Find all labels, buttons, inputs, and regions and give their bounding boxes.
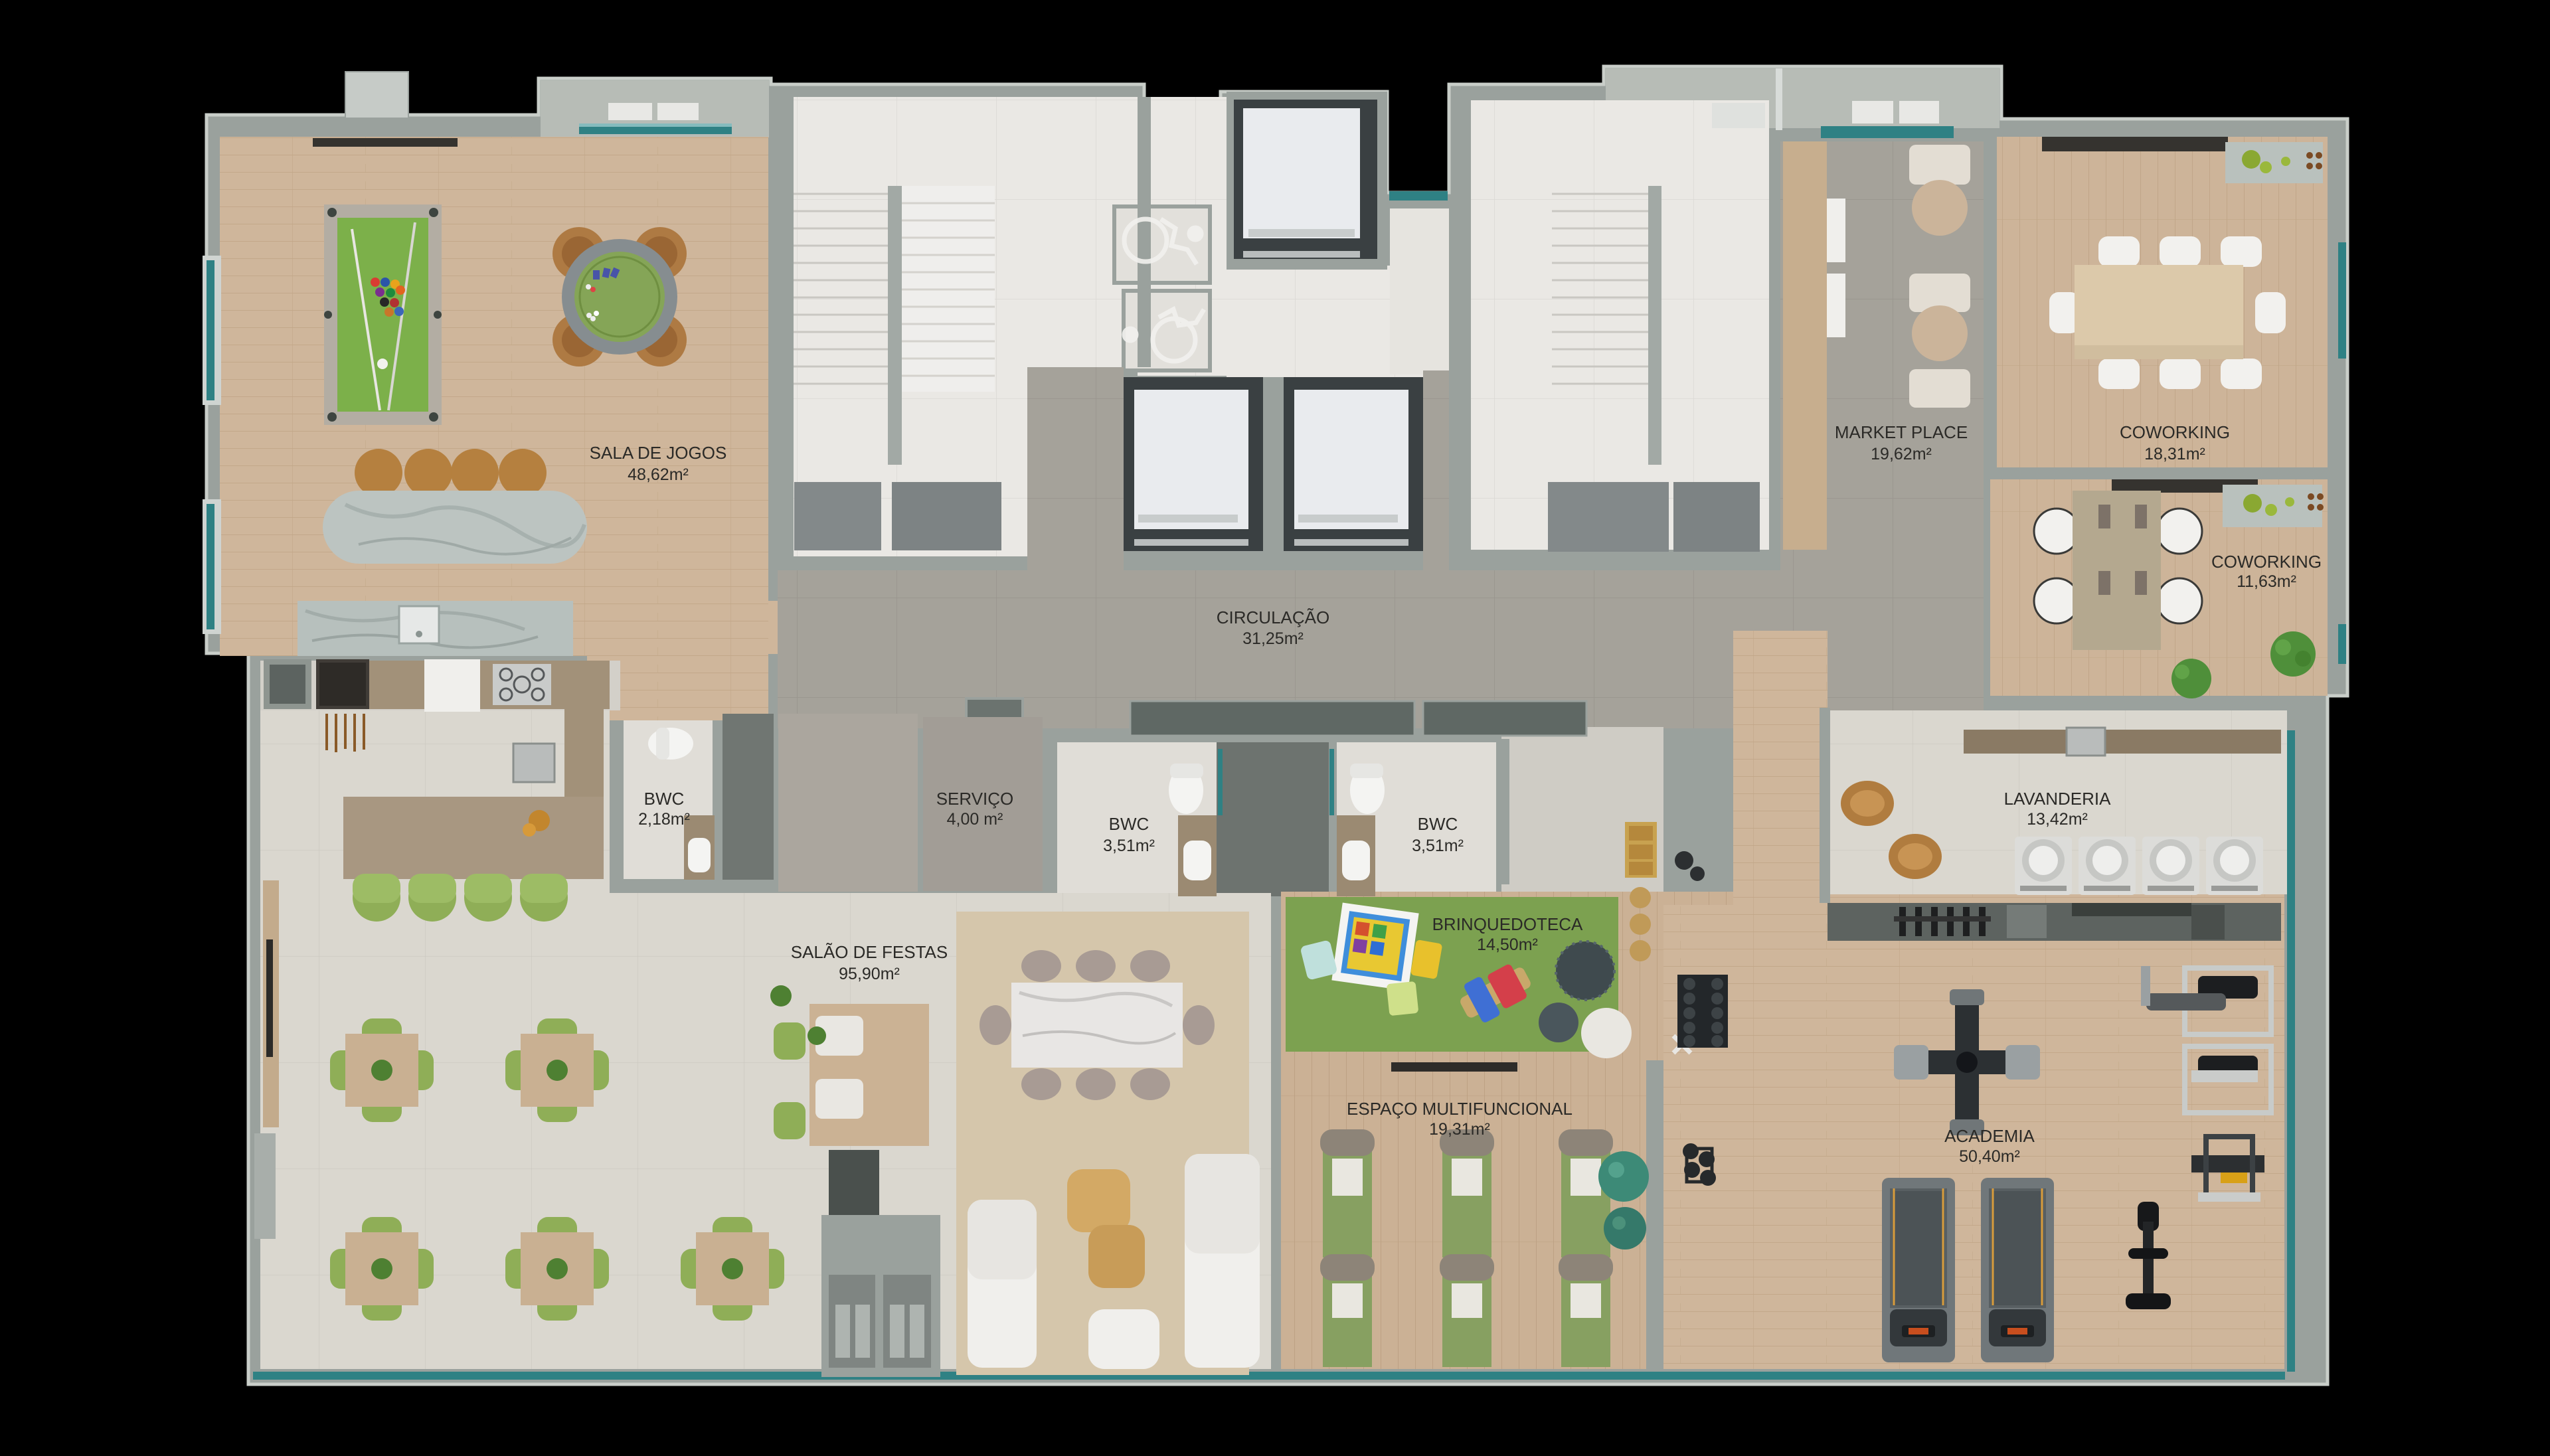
svg-text:COWORKING: COWORKING — [2120, 422, 2230, 442]
svg-text:BWC: BWC — [1418, 814, 1458, 834]
svg-text:SERVIÇO: SERVIÇO — [936, 789, 1014, 809]
svg-text:19,62m²: 19,62m² — [1871, 445, 1932, 463]
svg-text:COWORKING: COWORKING — [2211, 552, 2322, 572]
svg-text:13,42m²: 13,42m² — [2027, 810, 2088, 829]
svg-text:CIRCULAÇÃO: CIRCULAÇÃO — [1217, 607, 1329, 627]
svg-text:BWC: BWC — [644, 789, 685, 809]
svg-text:ACADEMIA: ACADEMIA — [1944, 1126, 2035, 1146]
svg-text:48,62m²: 48,62m² — [628, 465, 689, 484]
svg-text:SALÃO DE FESTAS: SALÃO DE FESTAS — [791, 942, 948, 962]
svg-text:LAVANDERIA: LAVANDERIA — [2004, 789, 2112, 809]
svg-text:MARKET PLACE: MARKET PLACE — [1835, 422, 1968, 442]
svg-text:14,50m²: 14,50m² — [1477, 935, 1538, 954]
svg-text:50,40m²: 50,40m² — [1959, 1147, 2020, 1166]
svg-text:95,90m²: 95,90m² — [839, 965, 900, 983]
svg-text:19,31m²: 19,31m² — [1429, 1120, 1490, 1139]
svg-text:18,31m²: 18,31m² — [2144, 445, 2205, 463]
svg-text:BRINQUEDOTECA: BRINQUEDOTECA — [1432, 914, 1583, 934]
svg-text:3,51m²: 3,51m² — [1412, 837, 1464, 855]
svg-text:SALA DE JOGOS: SALA DE JOGOS — [590, 443, 727, 463]
svg-text:2,18m²: 2,18m² — [638, 810, 690, 829]
svg-text:11,63m²: 11,63m² — [2237, 572, 2296, 591]
svg-text:4,00 m²: 4,00 m² — [947, 810, 1003, 829]
svg-text:ESPAÇO MULTIFUNCIONAL: ESPAÇO MULTIFUNCIONAL — [1347, 1099, 1572, 1119]
svg-text:3,51m²: 3,51m² — [1103, 837, 1155, 855]
svg-text:31,25m²: 31,25m² — [1242, 629, 1304, 648]
svg-text:BWC: BWC — [1109, 814, 1149, 834]
